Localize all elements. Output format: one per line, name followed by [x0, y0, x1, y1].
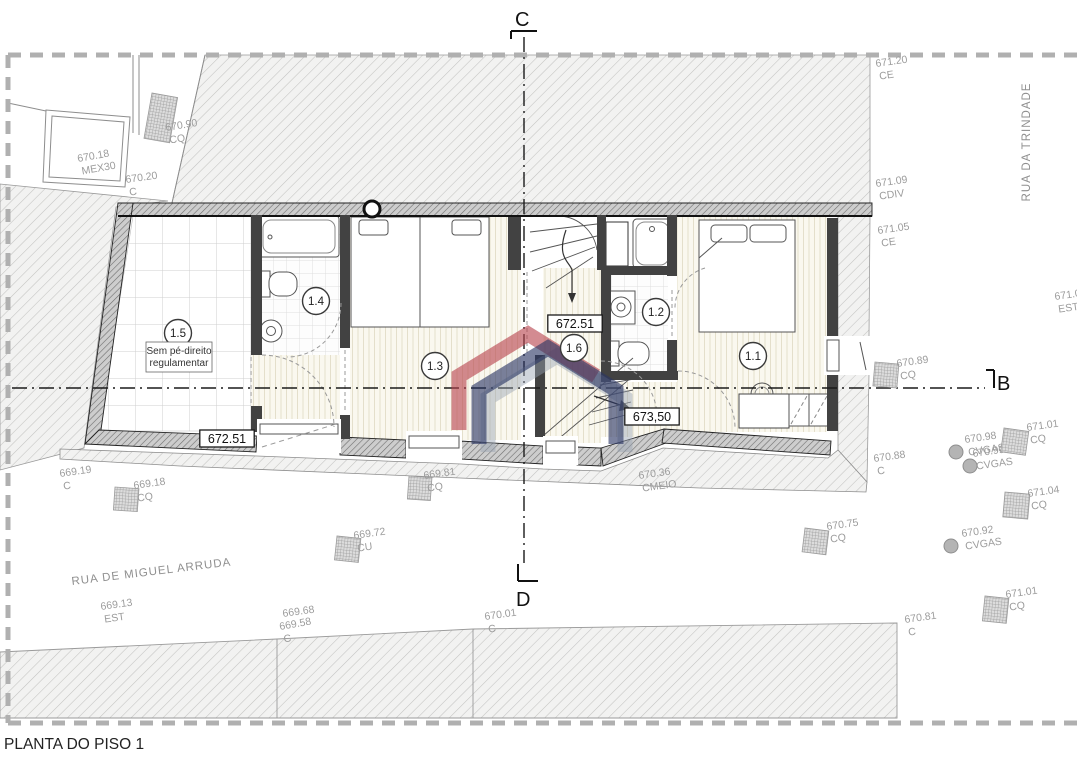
survey-point: 670.18MEX30 [76, 148, 116, 178]
room-label: 1.1 [740, 343, 767, 370]
survey-elevation-value: 670.89 [896, 354, 930, 370]
survey-point-code: CQ [137, 490, 154, 504]
survey-elevation-value: 669.19 [59, 464, 93, 480]
toilet-1-4 [269, 272, 297, 296]
survey-point-code: C [877, 465, 887, 478]
shower-drain [650, 227, 655, 232]
survey-point-code: CE [881, 236, 897, 250]
room-label: 1.3 [422, 353, 449, 380]
room-number: 1.3 [427, 361, 443, 373]
survey-point: 670.20C [125, 170, 159, 199]
survey-elevation-value: 671.01 [1005, 585, 1039, 601]
survey-point-code: C [488, 623, 498, 636]
pillow [452, 220, 481, 235]
pillow [711, 225, 747, 242]
survey-point-code: CQ [900, 368, 917, 382]
survey-marker-square-icon [1003, 492, 1030, 519]
room-label: 1.2 [643, 299, 670, 326]
street-name-miguel-arruda: RUA DE MIGUEL ARRUDA [71, 556, 232, 588]
survey-point-code: CQ [1031, 498, 1048, 512]
section-bracket-d [518, 564, 538, 581]
room-number: 1.6 [566, 343, 582, 355]
survey-point: 671.05CE [877, 221, 911, 250]
survey-marker-circle-icon [944, 539, 958, 553]
survey-elevation-value: 670.01 [484, 607, 518, 623]
survey-elevation-value: 671.04 [1027, 484, 1061, 500]
room-label: 1.4 [303, 288, 330, 315]
level-value: 672.51 [556, 317, 594, 331]
street-strip-bottom [0, 623, 897, 718]
window-opening-1-3 [406, 431, 462, 460]
survey-elevation-value: 669.18 [133, 476, 167, 492]
survey-marker-circle-icon [949, 445, 963, 459]
survey-point: 669.72CU [334, 526, 386, 563]
survey-point-code: CU [357, 541, 374, 555]
survey-point-code: C [129, 186, 139, 199]
survey-point: 670.88C [873, 449, 907, 478]
level-annotation: 672.51 [200, 430, 254, 447]
survey-point-code: C [63, 480, 73, 493]
room-label: 1.6 [561, 335, 588, 362]
survey-point-code: CQ [1030, 432, 1047, 446]
survey-point: 670.81C [904, 610, 938, 639]
note-line-1: Sem pé-direito [146, 346, 211, 357]
survey-elevation-value: 670.88 [873, 449, 907, 465]
street-name-trindade: RUA DA TRINDADE [1021, 83, 1033, 202]
survey-point-code: EST [1058, 301, 1077, 316]
level-annotation: 673,50 [625, 408, 679, 425]
survey-elevation-value: 670.81 [904, 610, 938, 626]
survey-point: 671.20CE [875, 54, 909, 83]
room-number: 1.1 [745, 351, 761, 363]
survey-point-code: CE [879, 69, 895, 83]
ceiling-note: Sem pé-direito regulamentar [146, 342, 212, 372]
survey-point-code: CQ [830, 531, 847, 545]
drawing-title: PLANTA DO PISO 1 [4, 736, 144, 753]
survey-marker-square-icon [802, 528, 829, 555]
street-block-top [172, 55, 870, 203]
washbasin-drain-1-2 [617, 303, 625, 311]
bathtub-drain [268, 235, 272, 239]
survey-marker-square-icon [1001, 428, 1029, 455]
duct-cupboard [606, 222, 628, 266]
survey-marker-square-icon [982, 596, 1008, 623]
survey-point-code: C [283, 632, 293, 645]
survey-point: 671.0EST [1054, 287, 1077, 315]
survey-point: 671.09CDIV [875, 174, 909, 203]
pillow [359, 220, 388, 235]
section-letter-d: D [516, 589, 530, 611]
survey-point-code: CQ [1009, 599, 1026, 613]
room-number: 1.2 [648, 307, 664, 319]
room-number: 1.5 [170, 328, 186, 340]
column-marker-icon [364, 201, 380, 217]
survey-elevation-value: 669.13 [100, 597, 134, 613]
wall-bottom-b [340, 437, 406, 458]
survey-elevation-value: 671.05 [877, 221, 911, 237]
bathtub-inner [263, 220, 335, 253]
room-number: 1.4 [308, 296, 325, 308]
floor-plan-page: C D B 670.90CQ670.18MEX30670.20C671.20CE… [0, 0, 1077, 767]
survey-point: 669.13EST [100, 597, 134, 626]
survey-elevation-value: 671.20 [875, 54, 909, 70]
survey-point-code: CQ [427, 480, 444, 494]
survey-elevation-value: 670.75 [826, 517, 860, 533]
section-letter-c: C [515, 9, 529, 31]
survey-point: 670.75CQ [802, 517, 859, 555]
survey-point-code: CDIV [879, 187, 906, 202]
note-line-2: regulamentar [150, 358, 210, 369]
survey-point-code: C [908, 626, 918, 639]
pillow [750, 225, 786, 242]
level-value: 673,50 [633, 410, 671, 424]
survey-point: 670.89CQ [873, 354, 929, 388]
survey-marker-square-icon [873, 362, 899, 388]
window-opening-1-6 [543, 436, 578, 465]
survey-point-code: CQ [169, 132, 186, 146]
toilet-1-2 [618, 342, 649, 365]
wall-bottom-d [577, 447, 601, 466]
kitchen-counter [739, 394, 789, 428]
survey-point-code: EST [104, 611, 126, 626]
neighbor-mass-upper [838, 216, 870, 337]
survey-point: 670.92CVGAS [944, 524, 1003, 553]
wall-top [118, 203, 872, 216]
survey-point: 671.01CQ [1001, 418, 1060, 456]
washbasin-drain-1-4 [267, 327, 276, 336]
section-letter-b: B [997, 373, 1010, 395]
survey-point: 671.01CQ [982, 585, 1038, 624]
section-bracket-b [986, 370, 994, 388]
survey-elevation-value: 669.72 [353, 526, 387, 542]
level-value: 672.51 [208, 432, 246, 446]
survey-elevation-value: 671.01 [1026, 418, 1060, 434]
survey-point: 669.18CQ [113, 476, 166, 512]
survey-elevation-value: 670.20 [125, 170, 159, 186]
level-annotation: 672.51 [548, 315, 602, 332]
survey-point: 671.04CQ [1003, 484, 1061, 519]
floor-plan-canvas: C D B 670.90CQ670.18MEX30670.20C671.20CE… [0, 0, 1077, 767]
survey-point: 669.19C [59, 464, 93, 493]
